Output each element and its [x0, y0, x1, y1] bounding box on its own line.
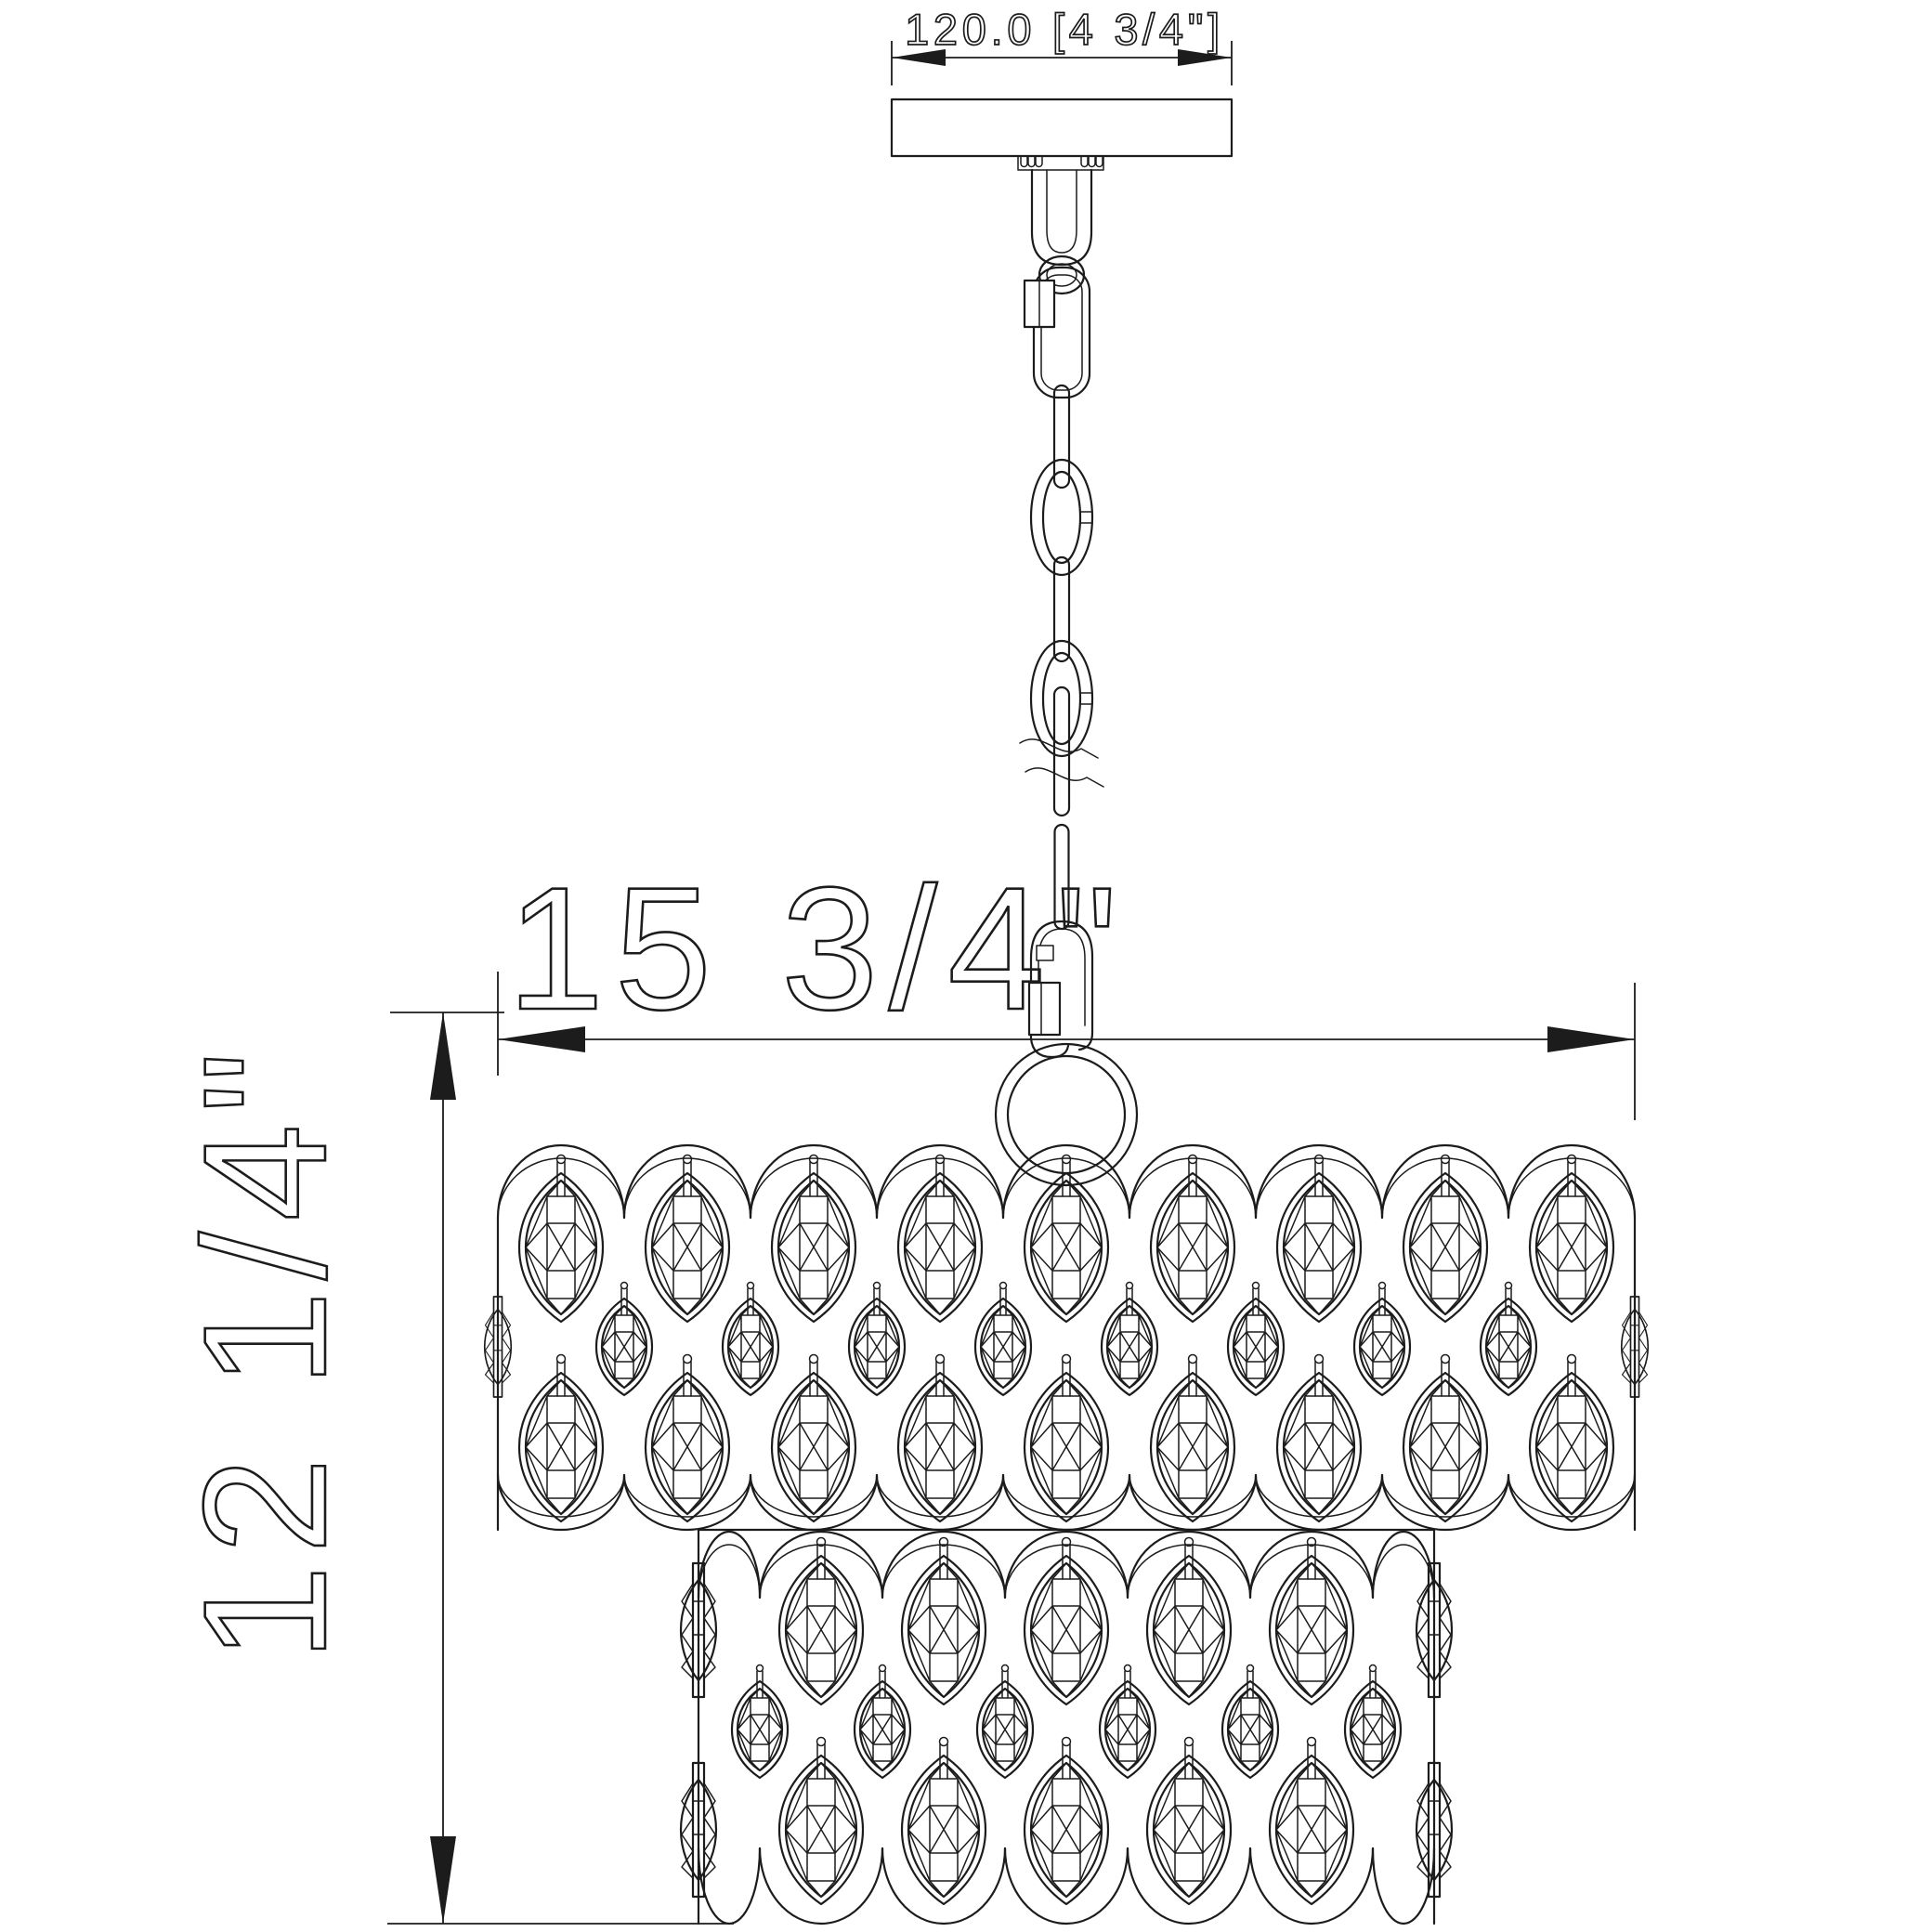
frame-scallop-bottom — [760, 1848, 882, 1924]
width-dimension: 15 3/4" — [498, 851, 1635, 1120]
crystal-drop — [1270, 1538, 1353, 1705]
frame-scallop-top — [1250, 1532, 1373, 1598]
frame-scallop-bottom-inner — [1382, 1475, 1508, 1517]
frame-scallop-bottom-inner — [1129, 1475, 1256, 1517]
small-crystal-drop — [849, 1283, 905, 1396]
crystal-drop — [1403, 1355, 1487, 1522]
frame-scallop-bottom-inner — [877, 1475, 1003, 1517]
crystal-drop — [902, 1538, 986, 1705]
small-crystal-drop — [1102, 1283, 1157, 1396]
top-tier — [485, 1145, 1649, 1530]
arrowhead-down — [430, 1836, 456, 1924]
crystal-drop — [1530, 1155, 1613, 1323]
chandelier-dimension-drawing: 120.0 [4 3/4"] 15 3/4" 12 1/4" — [0, 0, 1932, 1932]
crystal-drop — [519, 1155, 603, 1323]
crystal-drop — [1025, 1738, 1108, 1905]
crystal-drop — [779, 1538, 863, 1705]
small-crystal-drop — [1354, 1283, 1410, 1396]
crystal-drop — [1151, 1155, 1234, 1323]
crystal-drop — [779, 1738, 863, 1905]
crystal-drop — [902, 1738, 986, 1905]
arrowhead-up — [430, 1012, 456, 1100]
crystal-drop — [1277, 1355, 1361, 1522]
frame-scallop-top — [882, 1532, 1005, 1598]
frame-scallop-top — [1128, 1532, 1250, 1598]
crystal-drop — [1151, 1355, 1234, 1522]
crystal-drop — [898, 1355, 982, 1522]
frame-scallop-bottom — [882, 1848, 1005, 1924]
frame-scallop-top-inner — [882, 1545, 1005, 1598]
break-symbol — [1020, 739, 1103, 787]
crystal-drop — [772, 1155, 855, 1323]
small-crystal-drop — [732, 1665, 788, 1779]
frame-scallop-top-inner — [1250, 1545, 1373, 1598]
fixture-width-label: 15 3/4" — [507, 851, 1128, 1046]
small-crystal-drop — [855, 1665, 910, 1779]
crystal-drop — [1277, 1155, 1361, 1323]
frame-scallop-top — [760, 1532, 882, 1598]
small-crystal-drop — [977, 1665, 1033, 1779]
crystal-drop — [1147, 1738, 1231, 1905]
frame-scallop-bottom — [1373, 1848, 1434, 1924]
crystal-drop — [519, 1355, 603, 1522]
small-crystal-drop — [596, 1283, 652, 1396]
crystal-drop — [1403, 1155, 1487, 1323]
canopy-plate — [892, 99, 1232, 156]
arrowhead-right — [1547, 1026, 1635, 1052]
crystal-drop — [898, 1155, 982, 1323]
crystal-drop — [772, 1355, 855, 1522]
mounting-teeth — [1021, 157, 1103, 167]
canopy-width-label: 120.0 [4 3/4"] — [905, 5, 1224, 54]
frame-scallop-top — [698, 1532, 760, 1598]
frame-scallop-bottom-inner — [1508, 1475, 1635, 1517]
small-crystal-drop — [723, 1283, 778, 1396]
small-crystal-drop — [1222, 1665, 1278, 1779]
crystal-drop — [1025, 1155, 1108, 1323]
frame-scallop-top-inner — [760, 1545, 882, 1598]
small-crystal-drop — [1100, 1665, 1155, 1779]
crystal-drop — [1270, 1738, 1353, 1905]
crystal-drop — [1530, 1355, 1613, 1522]
frame-scallop-bottom — [698, 1848, 760, 1924]
crystal-drop — [1025, 1538, 1108, 1705]
mounting-plate — [1018, 156, 1103, 170]
bail-strap-inner — [1047, 170, 1077, 253]
frame-scallop-bottom-inner — [1003, 1475, 1129, 1517]
crystal-drop — [1025, 1355, 1108, 1522]
chain-link-front — [1031, 641, 1092, 756]
small-crystal-drop — [975, 1283, 1031, 1396]
fixture-height-label: 12 1/4" — [167, 1041, 362, 1662]
chain-link-edge — [1054, 557, 1069, 661]
small-crystal-drop — [1345, 1665, 1401, 1779]
frame-scallop-top — [1005, 1532, 1128, 1598]
crystal-drop — [646, 1155, 729, 1323]
frame-scallop-top-inner — [1128, 1545, 1250, 1598]
drawing-page: 120.0 [4 3/4"] 15 3/4" 12 1/4" — [0, 0, 1932, 1932]
canopy-dimension: 120.0 [4 3/4"] — [892, 5, 1232, 85]
frame-scallop-bottom — [1005, 1848, 1128, 1924]
frame-scallop-bottom-inner — [498, 1475, 624, 1517]
frame-scallop-bottom-inner — [751, 1475, 877, 1517]
bail-strap — [1032, 170, 1091, 265]
frame-scallop-top-inner — [1005, 1545, 1128, 1598]
ceiling-canopy — [892, 99, 1232, 170]
frame-scallop-bottom — [1250, 1848, 1373, 1924]
crystal-drop — [646, 1355, 729, 1522]
frame-scallop-bottom-inner — [624, 1475, 751, 1517]
frame-scallop-top — [1373, 1532, 1434, 1598]
frame-scallop-bottom-inner — [1256, 1475, 1382, 1517]
frame-scallop-bottom — [1128, 1848, 1250, 1924]
bottom-tier — [681, 1530, 1452, 1924]
small-crystal-drop — [1228, 1283, 1284, 1396]
crystal-drop — [1147, 1538, 1231, 1705]
small-crystal-drop — [1481, 1283, 1536, 1396]
